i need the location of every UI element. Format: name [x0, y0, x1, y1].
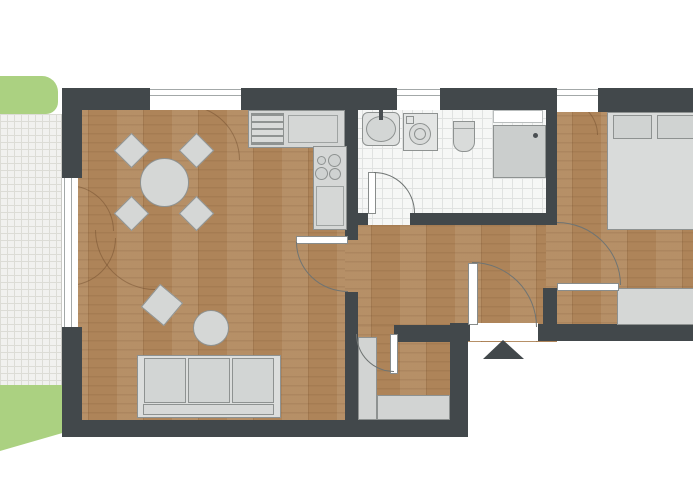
wall-bath-bedroom [546, 100, 557, 222]
shower [493, 125, 546, 178]
living-top-window [150, 87, 241, 110]
bathroom-window [397, 87, 440, 110]
wall-left-upper [62, 88, 82, 178]
cooktop-burner [329, 168, 341, 180]
terrace-window [62, 178, 78, 327]
lawn-lower [0, 385, 62, 451]
toilet [453, 121, 475, 152]
sofa-backrest [143, 404, 274, 415]
wardrobe [617, 288, 693, 325]
wall-living-hall [345, 292, 358, 420]
cooktop-burner [315, 167, 328, 180]
pillow [657, 115, 693, 139]
wall-storage-top [394, 325, 450, 342]
wall-top-bath [440, 88, 557, 110]
wall-bath-bottom-right [410, 213, 557, 225]
coffee-table [193, 310, 229, 346]
shower-shelf [493, 110, 543, 123]
storage-shelf-bottom [377, 395, 450, 420]
bedroom-window [557, 87, 598, 112]
dining-table [140, 158, 189, 207]
wall-storage-right [450, 327, 468, 437]
pillow [613, 115, 652, 139]
kitchen-appliance-inner [288, 115, 338, 143]
cooktop-burner [328, 154, 341, 167]
wall-bottom-right [538, 324, 693, 341]
sofa-cushion [188, 358, 230, 403]
washing-machine-panel [406, 116, 414, 124]
kitchen-appliance-striped [251, 113, 284, 145]
lawn-upper [0, 76, 58, 114]
wall-bottom-main [62, 420, 468, 437]
sofa-cushion [232, 358, 274, 403]
wall-bath-bottom-left [348, 213, 368, 225]
wall-top-bedroom [598, 88, 693, 112]
cooktop-burner [317, 156, 326, 165]
toilet-tank-line [454, 128, 474, 129]
washbasin-tap [379, 110, 383, 120]
sofa-cushion [144, 358, 186, 403]
wall-top-kitchen [241, 88, 397, 110]
wall-hall-bedroom-stub [543, 288, 557, 341]
floor-plan [0, 0, 693, 500]
oven-inner-line [316, 186, 344, 226]
entrance-marker-arrow [483, 340, 524, 359]
shower-drain [533, 133, 538, 138]
terrace [0, 114, 62, 385]
washing-machine-drum-inner [414, 128, 426, 140]
